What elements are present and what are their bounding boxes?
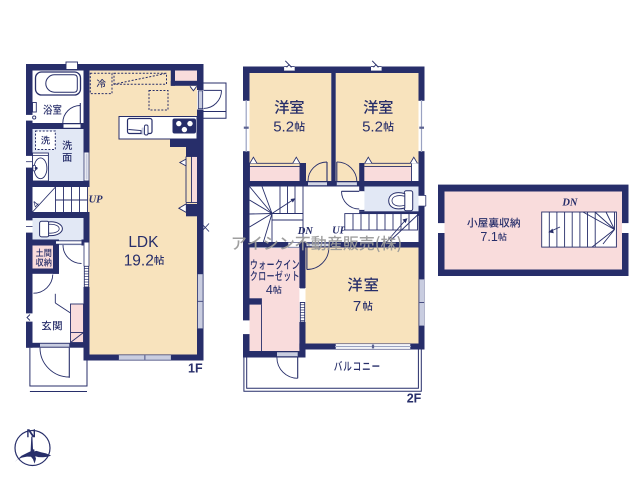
svg-text:DN: DN	[297, 226, 314, 237]
svg-text:7.1: 7.1	[480, 230, 497, 244]
svg-text:5.2: 5.2	[362, 119, 383, 136]
svg-text:5.2: 5.2	[273, 119, 294, 136]
svg-text:1F: 1F	[188, 362, 203, 376]
svg-text:UP: UP	[89, 195, 104, 206]
svg-text:19.2: 19.2	[124, 252, 154, 269]
svg-text:7: 7	[353, 298, 361, 315]
svg-text:DN: DN	[561, 197, 578, 208]
svg-text:4: 4	[266, 283, 273, 297]
svg-text:2F: 2F	[407, 392, 422, 406]
svg-text:LDK: LDK	[128, 234, 159, 251]
